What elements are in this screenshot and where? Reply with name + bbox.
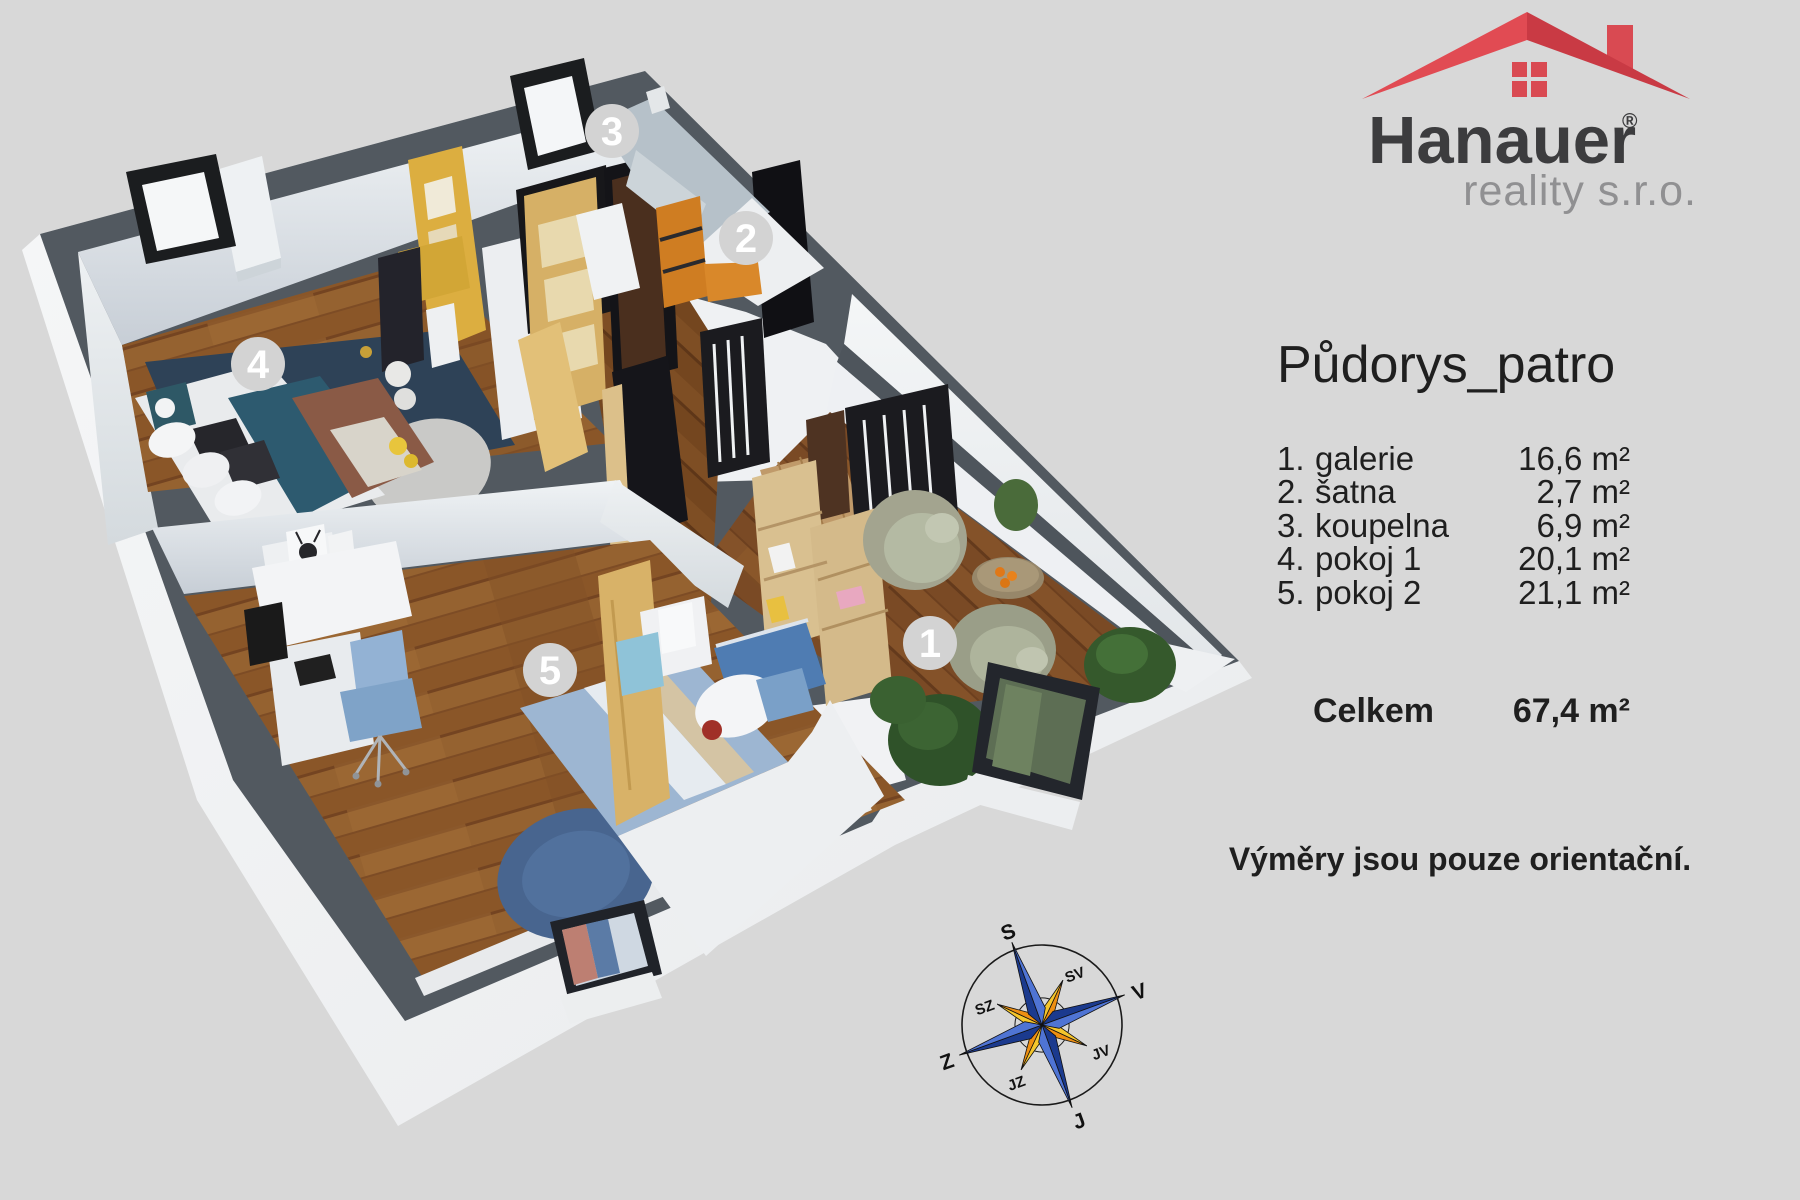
svg-text:Výměry jsou pouze orientační.: Výměry jsou pouze orientační. — [1229, 841, 1691, 877]
svg-text:Půdorys_patro: Půdorys_patro — [1277, 336, 1615, 394]
svg-text:5: 5 — [539, 649, 561, 693]
svg-text:pokoj 2: pokoj 2 — [1315, 574, 1421, 611]
svg-text:2,7 m²: 2,7 m² — [1536, 473, 1630, 510]
svg-text:Celkem: Celkem — [1313, 692, 1434, 730]
svg-text:4.: 4. — [1277, 540, 1305, 577]
svg-text:2: 2 — [735, 217, 757, 261]
svg-text:®: ® — [1622, 110, 1638, 133]
svg-text:1: 1 — [919, 622, 941, 666]
svg-text:16,6 m²: 16,6 m² — [1518, 440, 1630, 477]
svg-text:galerie: galerie — [1315, 440, 1414, 477]
svg-text:20,1 m²: 20,1 m² — [1518, 540, 1630, 577]
svg-text:4: 4 — [247, 343, 270, 387]
svg-text:5.: 5. — [1277, 574, 1305, 611]
svg-text:3.: 3. — [1277, 507, 1305, 544]
svg-text:21,1 m²: 21,1 m² — [1518, 574, 1630, 611]
svg-text:šatna: šatna — [1315, 473, 1396, 510]
svg-text:6,9 m²: 6,9 m² — [1536, 507, 1630, 544]
svg-text:3: 3 — [601, 110, 623, 154]
svg-text:1.: 1. — [1277, 440, 1305, 477]
svg-text:2.: 2. — [1277, 473, 1305, 510]
svg-text:67,4 m²: 67,4 m² — [1513, 692, 1630, 730]
svg-text:reality s.r.o.: reality s.r.o. — [1463, 167, 1697, 215]
svg-text:pokoj 1: pokoj 1 — [1315, 540, 1421, 577]
svg-text:koupelna: koupelna — [1315, 507, 1450, 544]
